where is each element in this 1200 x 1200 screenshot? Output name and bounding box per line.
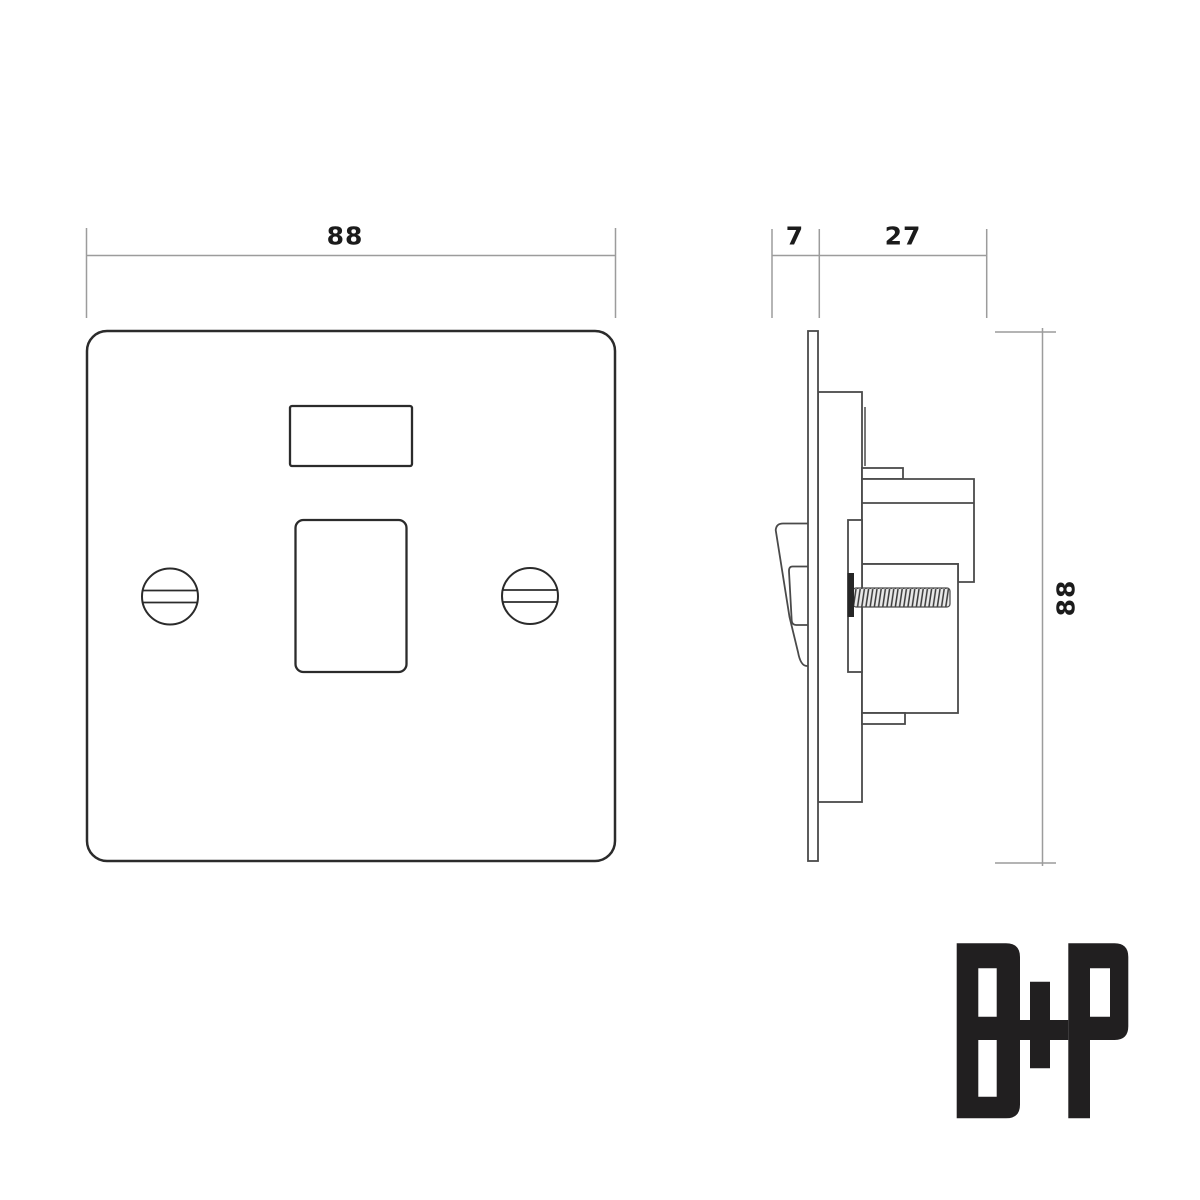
side-view	[776, 331, 974, 861]
rocker-switch-front	[296, 520, 407, 672]
dim-side-height-lines	[995, 328, 1056, 866]
bottom-tab	[862, 713, 905, 724]
screw-thread	[853, 588, 950, 607]
dim-plate-height-label: 88	[1052, 580, 1081, 617]
technical-drawing-canvas: B+P 88 7 27 88 B+P	[0, 0, 1200, 1200]
fixing-screw-left	[142, 569, 198, 625]
bp-logo: B+P	[957, 943, 1129, 1118]
dim-mechanism-depth-label: 27	[885, 222, 922, 251]
drawing-svg: B+P	[0, 0, 1200, 1200]
rocker-switch-side	[776, 524, 808, 667]
mechanism-body	[862, 564, 958, 713]
dim-front-width-label: 88	[327, 222, 364, 251]
top-tab	[862, 468, 903, 479]
dim-bezel-depth-label: 7	[786, 222, 804, 251]
fixing-screw-right	[502, 568, 558, 624]
front-view	[87, 331, 615, 861]
dim-side-depth-lines	[772, 229, 987, 318]
indicator-window	[290, 406, 412, 466]
screw-head-edge	[848, 573, 855, 617]
logo-letter-p	[1068, 943, 1128, 1118]
faceplate-side	[808, 331, 818, 861]
